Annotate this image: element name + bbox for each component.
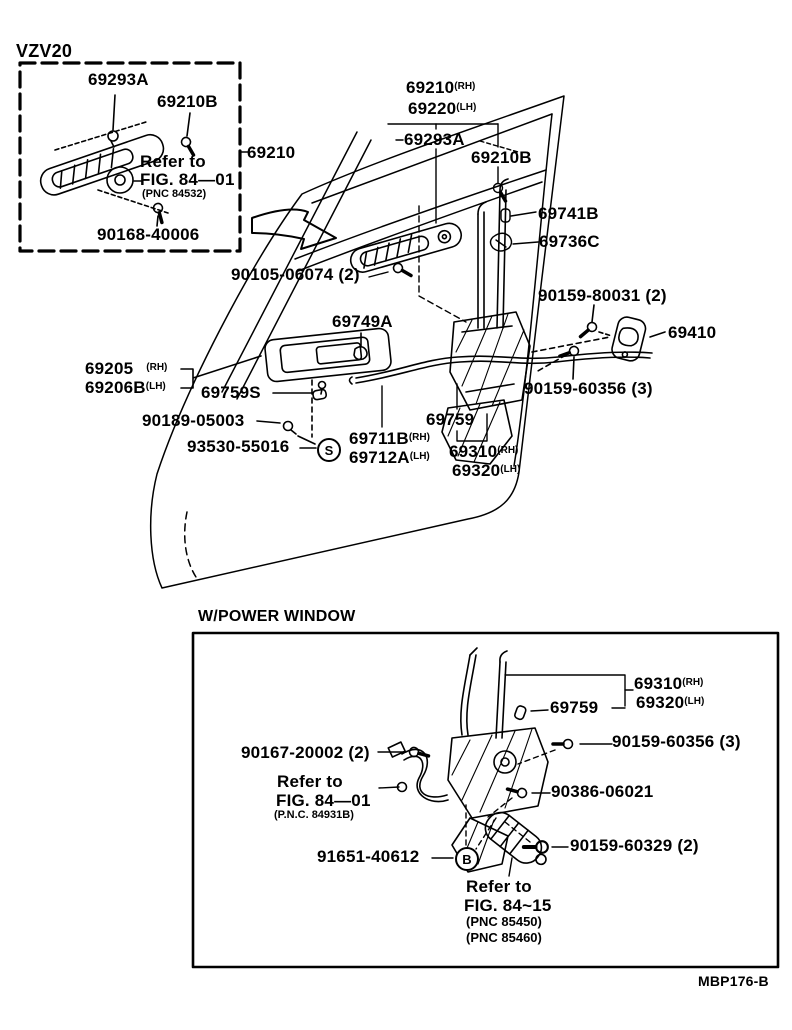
drawing-code: MBP176-B: [698, 974, 769, 989]
part-label-90189-05003: 90189-05003: [142, 412, 244, 430]
part-label-69310-rh-pw: 69310(RH): [634, 675, 703, 693]
refer-note-8401-line3: (P.N.C. 84931B): [274, 810, 354, 822]
part-label-69749a: 69749A: [332, 313, 393, 331]
part-label-90159-60356-pw: 90159-60356 (3): [612, 733, 741, 751]
stamp-marker-b: B: [455, 847, 479, 871]
refer-note-8415-line3: (PNC 85450): [466, 915, 542, 929]
part-label-91651-40612: 91651-40612: [317, 848, 419, 866]
part-label-69210-inset: 69210: [247, 144, 295, 162]
part-label-93530-55016: 93530-55016: [187, 438, 289, 456]
part-label-69320-lh-main: 69320(LH): [452, 462, 520, 480]
refer-note-8415-line1: Refer to: [466, 878, 532, 896]
part-label-69210-rh: 69210(RH): [406, 79, 475, 97]
part-label-69759s: 69759S: [201, 384, 261, 402]
refer-note-line2-inset: FIG. 84—01: [140, 171, 235, 189]
part-label-69205-rh: 69205(RH): [85, 360, 167, 378]
part-label-90105-06074: 90105-06074 (2): [231, 266, 360, 284]
part-label-90159-60329: 90159-60329 (2): [570, 837, 699, 855]
lock-assembly-pw-drawing: [388, 648, 572, 874]
part-label-69410: 69410: [668, 324, 716, 342]
part-label-90386-06021: 90386-06021: [551, 783, 653, 801]
part-label-69736c: 69736C: [539, 233, 600, 251]
part-label-69206b-lh: 69206B(LH): [85, 379, 166, 397]
part-label-69310-rh-main: 69310(RH): [449, 443, 518, 461]
part-label-90159-80031: 90159-80031 (2): [538, 287, 667, 305]
striker-drawing: [536, 305, 665, 379]
variant-label: VZV20: [16, 42, 72, 61]
part-label-69741b: 69741B: [538, 205, 599, 223]
refer-note-8415-line2: FIG. 84~15: [464, 897, 552, 915]
part-label-69293a-inset: 69293A: [88, 71, 149, 89]
part-label-69759-main: 69759: [426, 411, 474, 429]
parts-diagram-page: VZV20 69293A 69210B Refer to FIG. 84—01 …: [0, 0, 792, 1030]
part-label-69293a: 69293A: [404, 131, 465, 149]
stamp-marker-s: S: [317, 438, 341, 462]
refer-note-8401-line1: Refer to: [277, 773, 343, 791]
diagram-line-art: [0, 0, 792, 1030]
part-label-69220-lh: 69220(LH): [408, 100, 476, 118]
part-label-90167-20002: 90167-20002 (2): [241, 744, 370, 762]
part-label-69712a-lh: 69712A(LH): [349, 449, 430, 467]
part-label-69711b-rh: 69711B(RH): [349, 430, 430, 448]
refer-note-line1-inset: Refer to: [140, 153, 206, 171]
part-label-90168-40006: 90168-40006: [97, 226, 199, 244]
part-label-69210b: 69210B: [471, 149, 532, 167]
part-label-69759-pw: 69759: [550, 699, 598, 717]
arrow-icon: [252, 210, 336, 249]
refer-note-8401-line2: FIG. 84—01: [276, 792, 371, 810]
exterior-handle-drawing: [348, 220, 464, 279]
refer-note-line3-inset: (PNC 84532): [142, 189, 206, 201]
refer-note-8415-line4: (PNC 85460): [466, 931, 542, 945]
part-label-69320-lh-pw: 69320(LH): [636, 694, 704, 712]
power-window-title: W/POWER WINDOW: [198, 609, 355, 626]
part-label-90159-60356-main: 90159-60356 (3): [524, 380, 653, 398]
part-label-69210b-inset: 69210B: [157, 93, 218, 111]
